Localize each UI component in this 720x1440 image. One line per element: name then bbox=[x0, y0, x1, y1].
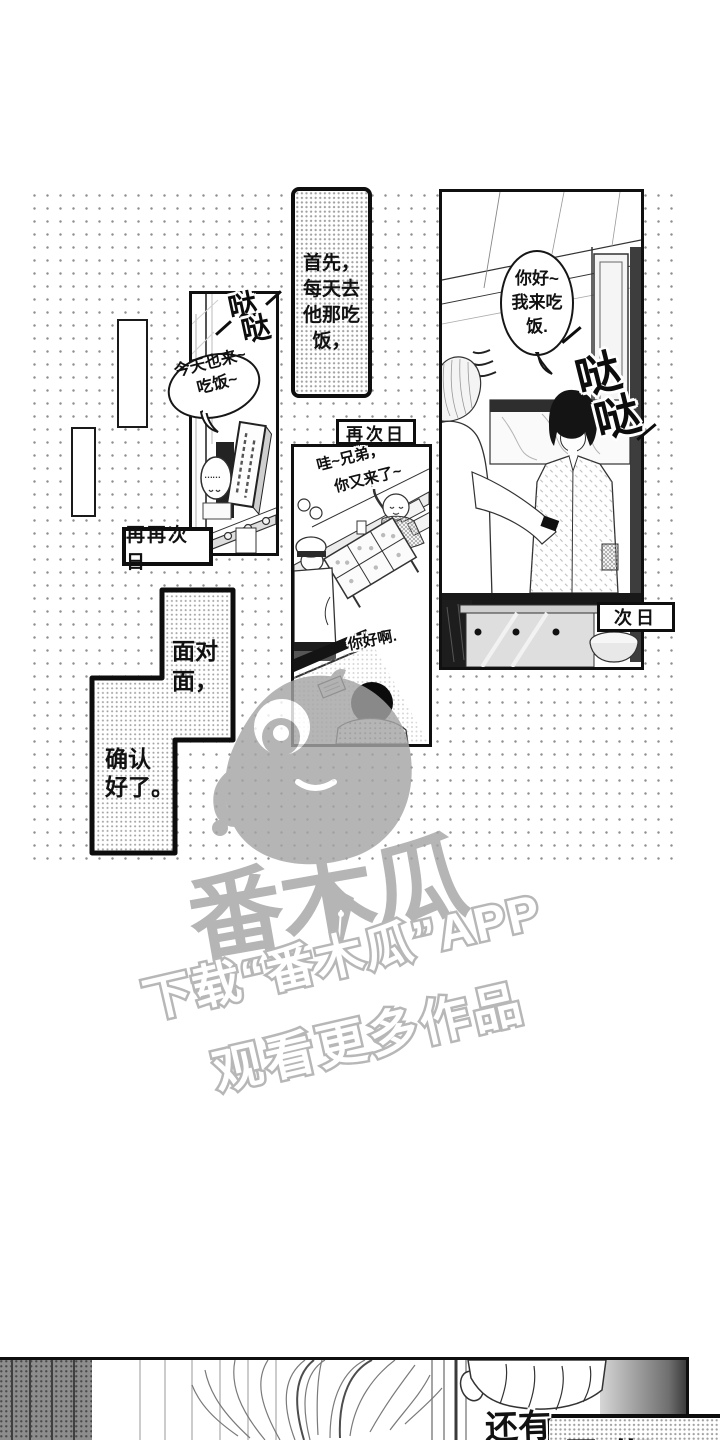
label-next-day-text: 次日 bbox=[614, 604, 658, 630]
empty-caption-box-2 bbox=[71, 427, 96, 517]
empty-caption-box-1 bbox=[117, 319, 148, 428]
label-again-next-day-text: 再次日 bbox=[346, 420, 406, 445]
label-again-next-day: 再次日 bbox=[336, 419, 416, 445]
blonde-hair bbox=[192, 1360, 442, 1440]
diner-bubble-tail bbox=[530, 348, 556, 378]
watermark-download-text: 下载“番木瓜”APP bbox=[139, 886, 547, 1029]
shop-sign bbox=[226, 422, 272, 514]
sunday-caption-text: 星期日 bbox=[561, 1426, 720, 1440]
face-caption-box bbox=[88, 586, 237, 857]
intro-line-2: 每天去 bbox=[295, 277, 368, 303]
face-caption-line-1: 面对 bbox=[172, 632, 218, 666]
label-again-again-next-day: 再再次日 bbox=[122, 527, 213, 566]
diner-bubble-line-2: 我来吃 bbox=[502, 291, 572, 315]
intro-line-4: 饭， bbox=[295, 329, 368, 355]
manga-page: …… 首先， 每天去 他那吃 饭， bbox=[0, 0, 720, 1440]
blob-ellipsis-text: …… bbox=[204, 470, 220, 480]
face-caption-line-2: 面， bbox=[172, 662, 218, 696]
intro-caption-box: 首先， 每天去 他那吃 饭， bbox=[291, 187, 372, 398]
pen-nib-icon bbox=[328, 888, 354, 946]
face-caption-line-4: 好了。 bbox=[105, 768, 174, 802]
diner-bubble-line-3: 饭. bbox=[502, 315, 572, 339]
intro-line-1: 首先， bbox=[295, 251, 368, 277]
diner-bubble-line-1: 你好~ bbox=[502, 267, 572, 291]
label-again-again-next-day-text: 再再次日 bbox=[126, 520, 209, 574]
street-bubble-tail bbox=[200, 410, 224, 436]
sunday-caption-box: 星期日 bbox=[545, 1414, 720, 1440]
watermark-watch-text: 观看更多作品 bbox=[208, 977, 530, 1101]
intro-line-3: 他那吃 bbox=[295, 303, 368, 329]
haiyou-text: 还有 bbox=[484, 1399, 552, 1440]
label-next-day: 次日 bbox=[597, 602, 675, 632]
diner-bubble-text: 你好~ 我来吃 饭. bbox=[502, 267, 572, 339]
